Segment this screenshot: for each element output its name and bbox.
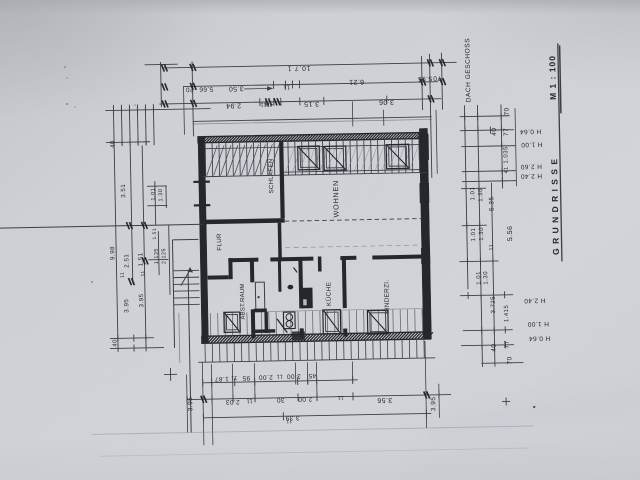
svg-text:5.95: 5.95 <box>418 75 432 82</box>
svg-text:KÜCHE: KÜCHE <box>324 282 332 307</box>
svg-text:77: 77 <box>504 340 511 348</box>
svg-text:H 2.40: H 2.40 <box>520 172 542 179</box>
svg-text:1.415: 1.415 <box>504 304 510 322</box>
svg-text:H 0.64: H 0.64 <box>520 128 542 135</box>
svg-text:WOHNEN: WOHNEN <box>331 180 341 218</box>
svg-text:3.56: 3.56 <box>377 396 392 403</box>
svg-text:1.035: 1.035 <box>503 146 509 164</box>
svg-text:1.01: 1.01 <box>470 186 476 200</box>
svg-text:30: 30 <box>276 396 284 403</box>
svg-text:M 1 : 100: M 1 : 100 <box>547 55 558 100</box>
svg-text:SCHLAFEN: SCHLAFEN <box>268 158 276 193</box>
svg-text:3.725: 3.725 <box>491 296 497 314</box>
svg-text:ABST.RAUM: ABST.RAUM <box>240 283 247 319</box>
svg-text:40: 40 <box>112 339 118 347</box>
svg-text:11: 11 <box>246 398 253 404</box>
svg-text:2.51: 2.51 <box>123 254 130 268</box>
svg-text:G R U N D R I S S E: G R U N D R I S S E <box>549 158 561 255</box>
svg-text:5.66: 5.66 <box>199 85 213 92</box>
svg-text:40: 40 <box>491 127 498 135</box>
svg-text:2.94: 2.94 <box>226 101 241 108</box>
svg-text:11: 11 <box>140 270 146 276</box>
svg-text:3.15: 3.15 <box>304 100 319 107</box>
svg-text:11: 11 <box>231 375 238 381</box>
svg-text:H 0.64: H 0.64 <box>529 334 551 341</box>
svg-text:5.35: 5.35 <box>488 196 495 211</box>
svg-text:2.125: 2.125 <box>161 248 167 264</box>
svg-text:3.50: 3.50 <box>228 84 243 91</box>
svg-text:3.00: 3.00 <box>286 372 300 379</box>
svg-text:11: 11 <box>260 101 267 107</box>
svg-text:2.00: 2.00 <box>258 373 272 380</box>
svg-text:1.01: 1.01 <box>151 188 157 201</box>
svg-text:H 2.60: H 2.60 <box>520 163 542 170</box>
svg-text:10.7 1: 10.7 1 <box>287 64 311 71</box>
svg-text:KINDERZI.: KINDERZI. <box>383 280 391 314</box>
svg-text:2.00: 2.00 <box>298 395 312 402</box>
svg-text:1.135: 1.135 <box>154 248 160 264</box>
svg-text:95: 95 <box>242 374 250 381</box>
svg-text:H 1.00: H 1.00 <box>527 320 549 327</box>
svg-text:1.30: 1.30 <box>479 227 485 241</box>
svg-text:1.51: 1.51 <box>152 228 158 240</box>
svg-text:11: 11 <box>489 244 495 251</box>
svg-text:3.06: 3.06 <box>379 98 394 105</box>
svg-text:1.30: 1.30 <box>158 189 164 202</box>
svg-text:11: 11 <box>337 394 344 400</box>
svg-text:77: 77 <box>503 128 510 136</box>
svg-text:3.95: 3.95 <box>123 299 130 313</box>
svg-text:FLUR: FLUR <box>216 233 223 251</box>
svg-text:70: 70 <box>504 107 511 115</box>
svg-text:11: 11 <box>283 84 290 90</box>
svg-text:1.01: 1.01 <box>471 227 477 241</box>
svg-text:11: 11 <box>286 418 292 424</box>
svg-text:3.95: 3.95 <box>138 293 145 307</box>
svg-text:DACH GESCHOSS: DACH GESCHOSS <box>464 38 472 103</box>
svg-text:1.01: 1.01 <box>476 271 482 285</box>
svg-text:3.95: 3.95 <box>430 396 437 411</box>
svg-text:40: 40 <box>110 140 116 148</box>
svg-text:11: 11 <box>120 272 126 278</box>
svg-text:5.56: 5.56 <box>507 225 514 241</box>
svg-text:1.30: 1.30 <box>478 188 484 202</box>
svg-text:1.51: 1.51 <box>137 252 144 266</box>
svg-text:H 1.00: H 1.00 <box>521 141 543 148</box>
svg-text:41: 41 <box>504 166 510 173</box>
svg-text:6.21: 6.21 <box>349 78 364 85</box>
svg-text:H 2.40: H 2.40 <box>524 296 546 303</box>
svg-text:40: 40 <box>491 343 498 351</box>
svg-text:70: 70 <box>506 356 513 364</box>
svg-text:70: 70 <box>433 74 441 81</box>
svg-text:3.51: 3.51 <box>120 184 127 198</box>
svg-text:1.30: 1.30 <box>483 271 489 285</box>
svg-text:1.87: 1.87 <box>214 375 228 382</box>
svg-text:45: 45 <box>308 372 316 379</box>
svg-text:9.98: 9.98 <box>109 246 116 260</box>
svg-text:3.95: 3.95 <box>187 397 194 412</box>
svg-text:2.03: 2.03 <box>225 398 239 405</box>
svg-text:11: 11 <box>276 373 283 379</box>
svg-text:20: 20 <box>185 86 193 93</box>
